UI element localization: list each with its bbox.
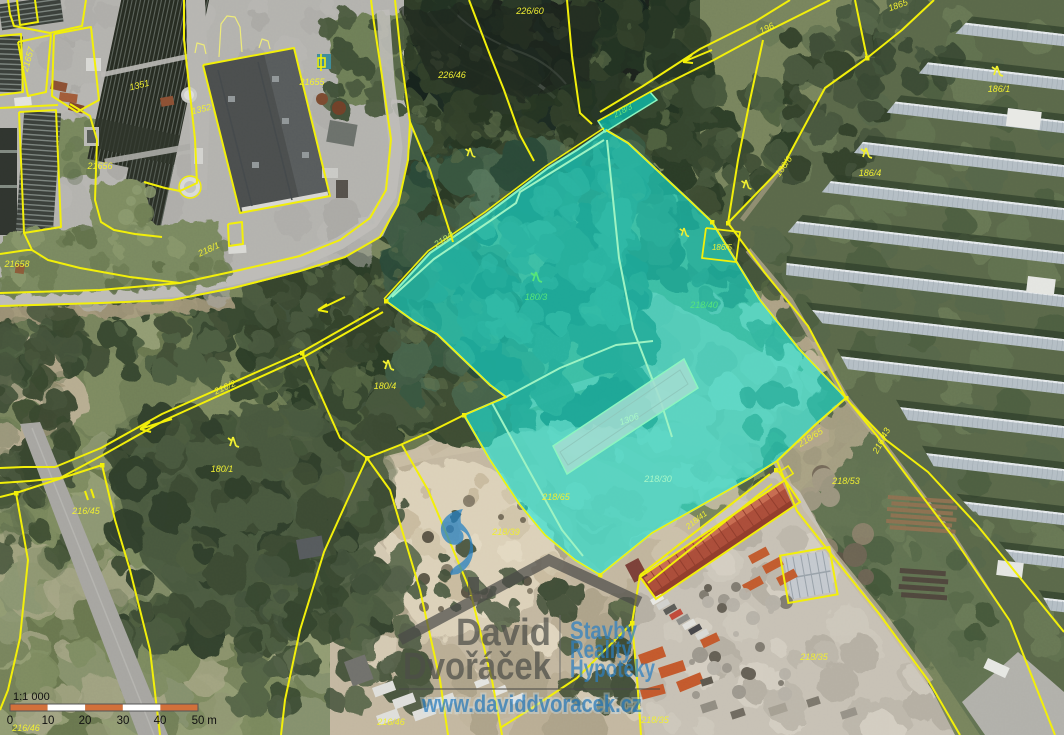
svg-text:218/30: 218/30 — [643, 474, 672, 484]
svg-text:30: 30 — [117, 715, 130, 727]
svg-text:216/46: 216/46 — [11, 723, 40, 733]
svg-text:226/60: 226/60 — [515, 6, 544, 16]
svg-text:226/46: 226/46 — [437, 70, 466, 80]
svg-text:218/53: 218/53 — [831, 476, 860, 486]
svg-text:Dvořáček: Dvořáček — [403, 646, 552, 688]
svg-text:0: 0 — [7, 715, 13, 727]
svg-text:50: 50 — [192, 715, 205, 727]
svg-text:m: m — [207, 715, 217, 727]
svg-text:216/45: 216/45 — [71, 506, 101, 516]
svg-text:218/35: 218/35 — [799, 652, 829, 662]
svg-text:21658: 21658 — [3, 259, 29, 269]
svg-text:10: 10 — [42, 715, 55, 727]
svg-text:216/46: 216/46 — [376, 717, 405, 727]
svg-text:218/65: 218/65 — [541, 492, 571, 502]
svg-text:180/1: 180/1 — [211, 464, 234, 474]
svg-text:218/40: 218/40 — [689, 300, 718, 310]
svg-text:21655: 21655 — [298, 77, 325, 87]
svg-text:20: 20 — [79, 715, 92, 727]
svg-text:180/3: 180/3 — [525, 292, 548, 302]
svg-text:186/5: 186/5 — [712, 243, 733, 252]
svg-text:Hypotéky: Hypotéky — [570, 655, 655, 683]
svg-text:21656: 21656 — [86, 161, 112, 171]
svg-text:180/4: 180/4 — [374, 381, 397, 391]
svg-text:186/1: 186/1 — [988, 84, 1011, 94]
svg-text:1:1 000: 1:1 000 — [13, 691, 50, 703]
svg-text:186/4: 186/4 — [859, 168, 882, 178]
svg-text:218/39: 218/39 — [491, 527, 520, 537]
svg-text:40: 40 — [154, 715, 167, 727]
svg-text:218/35: 218/35 — [640, 715, 670, 725]
svg-text:www.daviddvoracek.cz: www.daviddvoracek.cz — [421, 691, 642, 718]
